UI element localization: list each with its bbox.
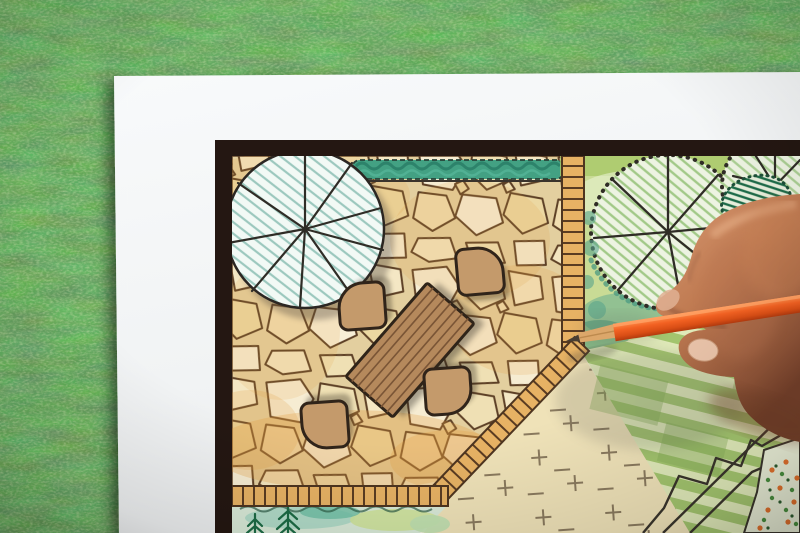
photo-vignette [0,0,800,533]
photo-canvas [0,0,800,533]
scene-svg [0,0,800,533]
